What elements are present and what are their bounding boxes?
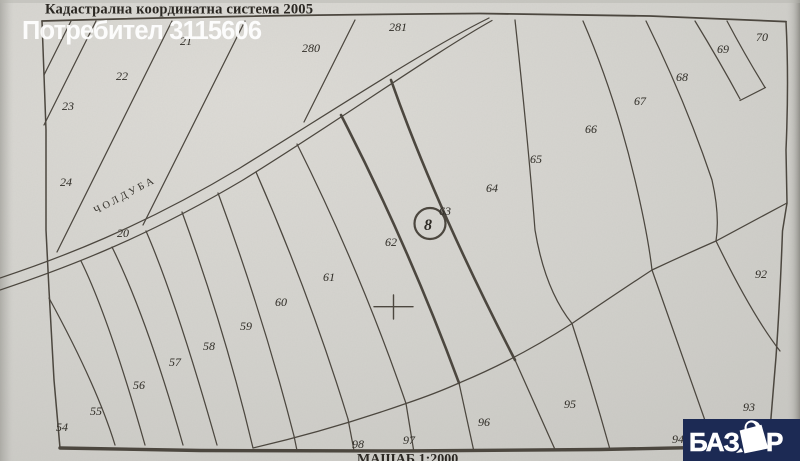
svg-text:МАЩАБ 1:2000: МАЩАБ 1:2000 bbox=[357, 452, 458, 461]
svg-text:20: 20 bbox=[117, 226, 129, 240]
svg-text:24: 24 bbox=[60, 175, 72, 189]
svg-text:8: 8 bbox=[424, 217, 432, 234]
svg-text:280: 280 bbox=[302, 41, 320, 55]
svg-text:64: 64 bbox=[486, 181, 498, 195]
svg-text:58: 58 bbox=[203, 339, 215, 353]
svg-text:59: 59 bbox=[240, 319, 252, 333]
svg-text:55: 55 bbox=[90, 404, 102, 418]
svg-text:22: 22 bbox=[116, 69, 128, 83]
svg-text:93: 93 bbox=[743, 400, 755, 414]
svg-text:23: 23 bbox=[62, 99, 74, 113]
svg-text:Р: Р bbox=[766, 427, 783, 457]
svg-text:96: 96 bbox=[478, 415, 490, 429]
svg-text:66: 66 bbox=[585, 122, 597, 136]
svg-text:60: 60 bbox=[275, 295, 287, 309]
svg-text:97: 97 bbox=[403, 433, 416, 447]
svg-text:БАЗ: БАЗ bbox=[689, 427, 739, 457]
svg-text:56: 56 bbox=[133, 378, 145, 392]
svg-text:98: 98 bbox=[352, 437, 364, 451]
svg-text:63: 63 bbox=[439, 204, 451, 218]
svg-text:69: 69 bbox=[717, 42, 729, 56]
svg-text:95: 95 bbox=[564, 397, 576, 411]
svg-text:70: 70 bbox=[756, 30, 768, 44]
svg-text:281: 281 bbox=[389, 20, 407, 34]
svg-text:57: 57 bbox=[169, 355, 182, 369]
svg-text:94: 94 bbox=[672, 432, 684, 446]
svg-text:67: 67 bbox=[634, 94, 647, 108]
svg-text:61: 61 bbox=[323, 270, 335, 284]
svg-text:92: 92 bbox=[755, 267, 767, 281]
svg-text:Кадастрална координатна систем: Кадастрална координатна система 2005 bbox=[45, 2, 313, 18]
svg-text:65: 65 bbox=[530, 152, 542, 166]
svg-text:54: 54 bbox=[56, 420, 68, 434]
svg-text:68: 68 bbox=[676, 70, 688, 84]
svg-text:62: 62 bbox=[385, 235, 397, 249]
svg-text:Потребител 3115606: Потребител 3115606 bbox=[22, 17, 262, 45]
